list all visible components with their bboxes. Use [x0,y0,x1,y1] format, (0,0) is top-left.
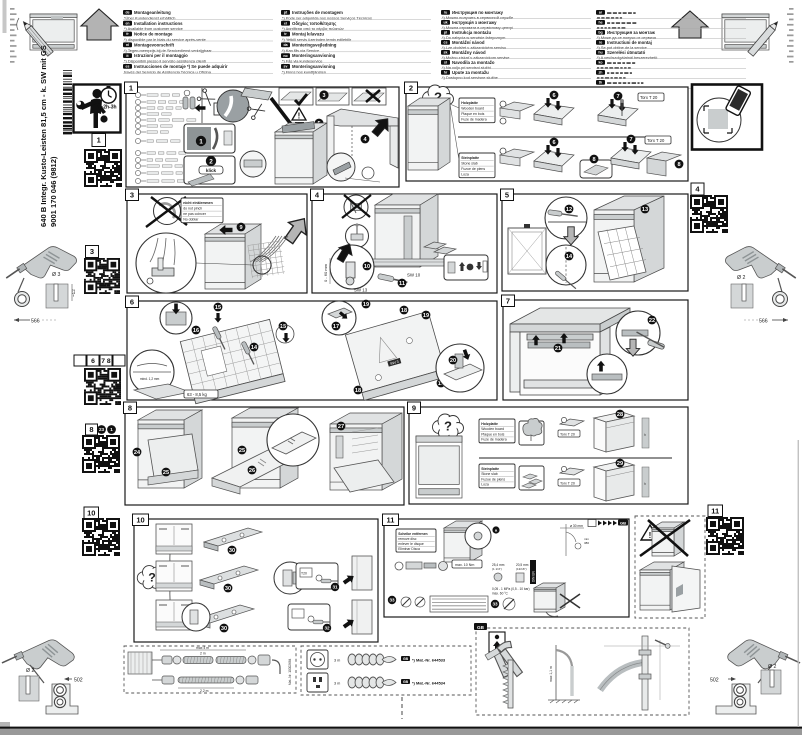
svg-text:*) Finns hos kundtjänsten: *) Finns hos kundtjänsten [282,69,326,74]
svg-text:klick: klick [206,168,217,173]
svg-text:!: ! [298,112,301,121]
svg-text:*) Kan fås via Service: *) Kan fås via Service [282,48,319,53]
svg-text:Installation instructions: Installation instructions [134,21,183,26]
svg-text:2: 2 [209,158,213,165]
svg-text:23: 23 [99,427,105,432]
svg-text:Loza: Loza [461,172,469,176]
svg-text:zh: zh [599,71,603,75]
svg-text:max. 10 Nm: max. 10 Nm [455,563,474,567]
svg-text:380: 380 [584,541,589,545]
svg-text:Οδηγίες τοποθέτησης: Οδηγίες τοποθέτησης [292,21,337,26]
svg-text:32: 32 [324,626,330,631]
svg-text:0,05 - 1 MPa (0,5 - 10 bar): 0,05 - 1 MPa (0,5 - 10 bar) [492,587,530,591]
svg-text:ne pas coincer: ne pas coincer [183,212,207,216]
svg-text:Ø 2: Ø 2 [737,275,745,281]
svg-text:18: 18 [355,388,361,394]
svg-text:Fuzue de piens: Fuzue de piens [461,167,485,171]
svg-text:11: 11 [399,281,405,287]
svg-text:Ø 2: Ø 2 [768,664,776,670]
svg-text:9001 170 046 (9812): 9001 170 046 (9812) [49,156,58,227]
svg-text:3 m: 3 m [334,682,340,686]
svg-text:2 m: 2 m [200,652,206,656]
svg-text:?: ? [148,570,156,584]
svg-text:*) Disponibili presso il servi: *) Disponibili presso il servizio assist… [124,59,206,64]
svg-text:Montageanleitung: Montageanleitung [134,10,171,15]
svg-text:Torx T 20: Torx T 20 [640,95,658,100]
svg-text:640 B Integr. Kusto-Leisten 81: 640 B Integr. Kusto-Leisten 81,5 cm - k.… [39,45,48,227]
svg-text:No doblar: No doblar [183,217,199,221]
svg-text:nicht einklemmen: nicht einklemmen [183,201,213,205]
svg-text:Loza: Loza [481,483,489,487]
svg-text:3: 3 [130,190,134,199]
svg-text:sk: sk [444,51,448,55]
svg-text:5: 5 [505,190,509,199]
svg-text:?: ? [444,419,452,434]
svg-text:Torx T 20: Torx T 20 [560,481,575,485]
svg-text:16: 16 [193,328,199,334]
svg-text:7: 7 [506,296,510,305]
svg-text:502: 502 [74,678,83,684]
svg-text:max 4 m: max 4 m [196,646,209,650]
svg-text:(13/16"): (13/16") [516,567,527,571]
svg-text:1: 1 [97,136,101,145]
svg-text:Steinplatte: Steinplatte [481,467,499,471]
svg-text:6: 6 [552,93,555,99]
svg-text:502: 502 [710,678,719,684]
svg-text:es: es [126,65,130,69]
svg-text:ko: ko [598,61,602,65]
svg-text:h: h [644,482,646,486]
svg-text:Monteringsanvisning: Monteringsanvisning [292,64,336,69]
svg-text:Steinplatte: Steinplatte [461,156,479,160]
svg-text:8: 8 [128,403,132,412]
svg-text:18: 18 [401,308,407,314]
svg-text:33: 33 [389,598,395,603]
svg-text:remove disc: remove disc [398,537,417,541]
svg-text:22: 22 [649,318,655,324]
svg-text:pl: pl [444,31,447,35]
svg-text:63 - 8,5 kg: 63 - 8,5 kg [187,392,207,397]
svg-text:21: 21 [555,346,561,352]
svg-text:SW 10: SW 10 [407,273,421,278]
svg-text:!: ! [649,531,652,540]
svg-text:Holzplatte: Holzplatte [461,101,478,105]
svg-text:mind. 1,2 mm: mind. 1,2 mm [140,377,160,381]
svg-text:(1 1/4"): (1 1/4") [492,567,502,571]
svg-text:6: 6 [130,297,134,306]
svg-text:Ø 2: Ø 2 [26,668,34,674]
svg-text:8: 8 [89,425,93,434]
svg-text:max. 60 °C: max. 60 °C [492,592,508,596]
svg-text:8: 8 [592,157,595,163]
svg-text:GB: GB [403,657,409,661]
svg-text:11: 11 [711,506,719,515]
svg-text:31: 31 [332,585,338,590]
svg-text:en: en [125,21,129,25]
svg-text:DIN EN: DIN EN [532,570,536,582]
svg-text:10: 10 [136,515,144,524]
svg-text:17: 17 [333,324,339,330]
svg-text:1: 1 [129,83,133,92]
svg-text:Plaque en bois: Plaque en bois [461,112,484,116]
svg-text:GB: GB [620,520,626,525]
svg-text:ru: ru [444,11,448,15]
svg-text:14: 14 [566,254,573,260]
svg-text:Instruções de montagem: Instruções de montagem [292,10,343,15]
svg-text:26: 26 [249,468,255,474]
svg-text:uk: uk [443,21,447,25]
svg-text:Wooden board: Wooden board [481,427,504,431]
svg-text:27: 27 [338,424,344,430]
svg-text:Stone slab: Stone slab [461,161,478,165]
svg-text:*) Yetkili servis üzerinden te: *) Yetkili servis üzerinden temin edileb… [282,37,352,42]
svg-text:*Über Kundendienst erhältlich: *Über Kundendienst erhältlich [124,15,175,20]
svg-text:de: de [125,11,129,15]
svg-text:th: th [599,81,602,85]
svg-text:el: el [284,21,287,25]
svg-text:6: 6 [91,358,95,365]
svg-text:*) Mat.-Nr. 644533: *) Mat.-Nr. 644533 [412,658,446,663]
svg-text:GB: GB [403,680,409,684]
svg-text:10: 10 [364,264,370,270]
svg-text:1: 1 [110,427,113,432]
svg-text:30: 30 [229,548,235,554]
svg-text:Instrucciones de montaje *) S: Instrucciones de montaje *) Se puede adq… [134,64,228,69]
svg-text:13: 13 [642,207,648,213]
svg-text:7 8: 7 8 [101,358,111,365]
svg-text:7: 7 [629,137,632,143]
svg-text:7: 7 [616,94,619,100]
svg-text:28: 28 [617,412,623,418]
svg-text:do not pinch: do not pinch [183,206,202,210]
svg-text:Eliminar Disca: Eliminar Disca [398,547,420,551]
svg-text:566: 566 [759,319,768,325]
svg-text:Scheibe entfernen: Scheibe entfernen [398,532,427,536]
svg-text:15: 15 [215,305,221,311]
svg-text:Fuze de madera: Fuze de madera [481,438,507,442]
svg-text:he: he [598,21,602,25]
svg-text:*) Tegen meerprijs bij de Serv: *) Tegen meerprijs bij de Servicedienst … [124,48,212,53]
svg-text:h: h [644,433,646,437]
svg-text:no: no [283,54,287,58]
svg-text:Fuzue de piens: Fuzue de piens [481,477,505,481]
svg-text:bg: bg [598,31,602,35]
svg-text:Torx T 20: Torx T 20 [647,138,665,143]
svg-text:Montaj kılavuzu: Montaj kılavuzu [292,32,324,37]
svg-text:8: 8 [677,162,680,168]
svg-text:*) Available from customer ser: *) Available from customer service [124,26,183,31]
svg-text:Plaque en bois: Plaque en bois [481,432,504,436]
svg-text:*) Pode ser adquirida nos noss: *) Pode ser adquirida nos nossos Serviço… [282,15,372,20]
svg-text:Monteringsvejledning: Monteringsvejledning [292,42,337,47]
svg-text:Monteringsanvisning: Monteringsanvisning [292,53,336,58]
svg-text:30: 30 [221,626,227,632]
svg-text:Fuze de madera: Fuze de madera [461,117,487,121]
svg-text:hu: hu [598,51,602,55]
svg-text:sv: sv [284,65,288,69]
svg-text:*) Διατίθεται από το σέρβις πε: *) Διατίθεται από το σέρβις πελατών [282,26,344,31]
svg-text:0 - 60 mm: 0 - 60 mm [323,263,328,282]
svg-text:nl: nl [126,43,129,47]
svg-text:2,2 m: 2,2 m [200,689,209,693]
svg-text:Mat.-Nr. 10002684: Mat.-Nr. 10002684 [288,658,292,685]
svg-text:12: 12 [566,207,572,213]
svg-text:sl: sl [444,61,447,65]
svg-text:Stone slab: Stone slab [481,472,498,476]
svg-text:*) Dostupno kod servisne služb: *) Dostupno kod servisne službe [442,75,498,80]
svg-text:SW 13: SW 13 [354,288,368,293]
svg-text:da: da [283,43,287,47]
svg-text:*) A vevöszolgálatnál beszerez: *) A vevöszolgálatnál beszerezhetö [597,55,657,60]
svg-text:3: 3 [90,247,94,256]
svg-text:~12: ~12 [71,289,76,297]
svg-text:30: 30 [225,586,231,592]
svg-text:Wooden board: Wooden board [461,106,484,110]
svg-text:Ø 3: Ø 3 [52,272,60,278]
svg-text:*) disponible par le biais du: *) disponible par le biais du service ap… [124,37,206,42]
svg-text:24: 24 [134,450,141,456]
svg-text:25: 25 [239,448,245,454]
svg-text:1: 1 [199,138,203,145]
svg-text:ro: ro [599,41,603,45]
svg-text:11: 11 [387,515,395,524]
svg-text:566: 566 [31,319,40,325]
svg-text:9: 9 [412,403,416,412]
svg-text:14: 14 [251,345,258,351]
svg-text:9: 9 [239,225,242,231]
svg-text:2: 2 [409,83,413,92]
svg-text:*) Fås via kundeservice: *) Fås via kundeservice [282,59,322,64]
svg-text:T20: T20 [301,572,307,576]
svg-text:enlever le disque: enlever le disque [398,542,424,546]
svg-text:través del Servicio de Asisten: través del Servicio de Asistencia Técnic… [124,69,212,74]
svg-text:19: 19 [423,313,429,319]
svg-text:3 m: 3 m [334,659,340,663]
svg-text:10: 10 [87,508,95,517]
svg-text:Holzplatte: Holzplatte [481,422,498,426]
svg-text:max 1,1 m: max 1,1 m [549,666,553,682]
svg-text:Istruzioni per il montaggio: Istruzioni per il montaggio [134,53,188,58]
svg-text:3: 3 [323,93,326,99]
svg-text:Montagevoorschrift: Montagevoorschrift [134,42,175,47]
svg-text:33: 33 [492,602,498,607]
svg-text:GB: GB [477,625,485,630]
svg-text:29: 29 [617,461,623,467]
svg-text:cs: cs [444,41,448,45]
svg-text:20: 20 [450,358,456,364]
svg-text:*) Mat.-Nr. 644534: *) Mat.-Nr. 644534 [412,681,446,686]
svg-text:19: 19 [363,302,369,308]
svg-text:6: 6 [552,140,555,146]
svg-text:ø 30 mm: ø 30 mm [570,524,583,528]
svg-text:Torx T 20: Torx T 20 [560,432,575,436]
svg-text:Notice de montage: Notice de montage [134,32,173,37]
svg-text:25: 25 [163,470,169,476]
